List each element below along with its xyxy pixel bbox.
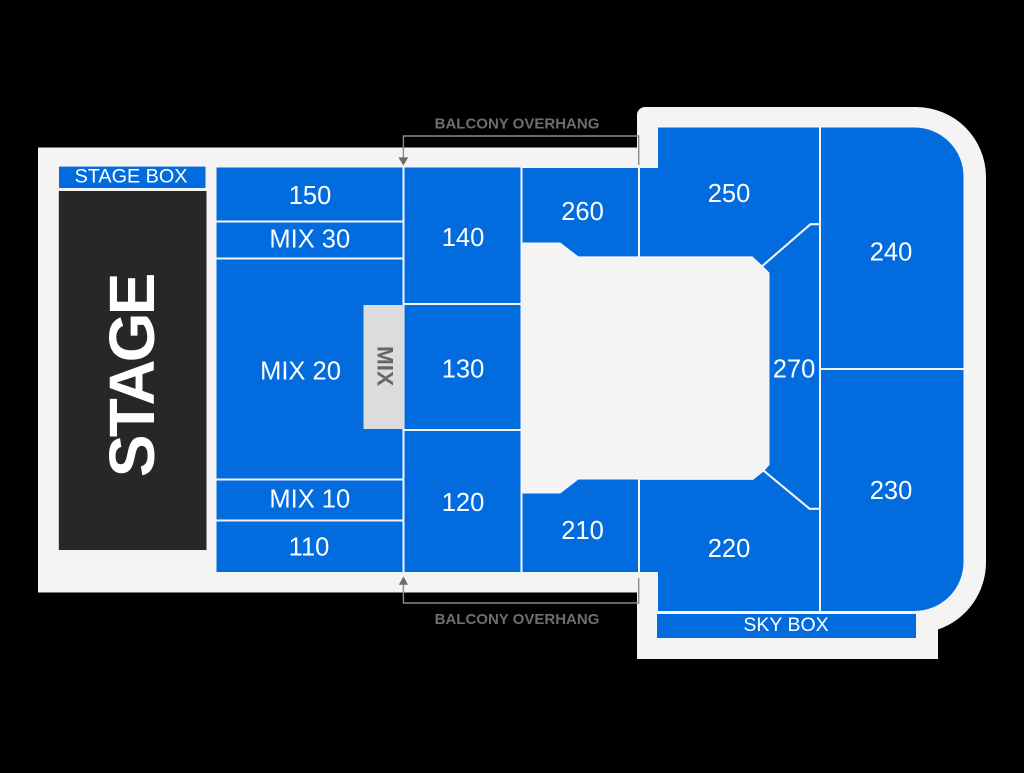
svg-text:150: 150 bbox=[289, 182, 332, 210]
svg-text:BALCONY OVERHANG: BALCONY OVERHANG bbox=[435, 611, 600, 628]
svg-text:110: 110 bbox=[289, 534, 330, 562]
svg-text:MIX: MIX bbox=[373, 346, 398, 386]
svg-text:SKY BOX: SKY BOX bbox=[743, 614, 828, 636]
svg-text:130: 130 bbox=[442, 356, 485, 384]
svg-text:120: 120 bbox=[442, 489, 485, 517]
svg-text:250: 250 bbox=[708, 180, 751, 208]
svg-text:240: 240 bbox=[870, 239, 913, 267]
svg-text:270: 270 bbox=[773, 356, 816, 384]
svg-text:MIX 10: MIX 10 bbox=[269, 486, 350, 514]
svg-text:140: 140 bbox=[442, 224, 485, 252]
svg-text:230: 230 bbox=[870, 477, 913, 505]
svg-text:MIX 30: MIX 30 bbox=[269, 226, 350, 254]
svg-text:MIX 20: MIX 20 bbox=[260, 358, 341, 386]
svg-text:260: 260 bbox=[561, 198, 604, 226]
svg-text:220: 220 bbox=[708, 535, 751, 563]
svg-text:STAGE: STAGE bbox=[96, 274, 168, 477]
svg-text:210: 210 bbox=[561, 517, 604, 545]
svg-text:BALCONY OVERHANG: BALCONY OVERHANG bbox=[435, 116, 600, 133]
svg-text:STAGE BOX: STAGE BOX bbox=[75, 165, 188, 187]
